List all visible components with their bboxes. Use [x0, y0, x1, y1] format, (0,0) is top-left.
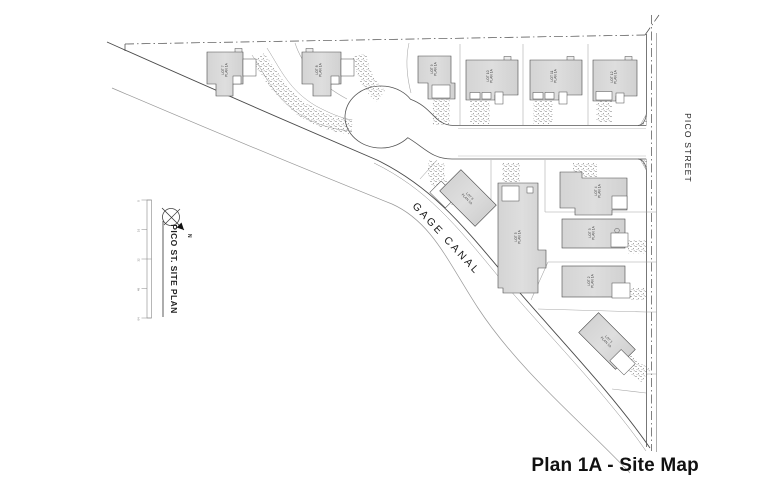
house-lot-7: LOT 7 PLAN 1A — [207, 49, 256, 97]
pico-street-label: PICO STREET — [683, 113, 693, 183]
lot8-9-line — [407, 43, 411, 93]
porch — [331, 76, 339, 84]
corner-ramp-north — [640, 114, 647, 126]
sheet-label-block: PICO ST. SITE PLAN — [163, 221, 179, 317]
lot2-1-line — [538, 309, 646, 312]
tract-boundary — [125, 15, 659, 51]
garage — [243, 59, 256, 76]
porch — [495, 92, 503, 104]
northeast-jog-line — [645, 15, 659, 35]
gage-canal: GAGE CANAL — [107, 42, 650, 473]
porch — [616, 93, 624, 103]
house-lot-8: LOT 8 PLAN 1A — [302, 49, 354, 97]
scale-tick-label: 16 — [137, 229, 141, 233]
scale-tick-label: 64 — [137, 317, 141, 321]
north-boundary-line — [125, 35, 645, 44]
garage — [596, 92, 612, 101]
garage — [470, 93, 480, 100]
driveway-lot8 — [359, 55, 381, 96]
corner-ramp-south — [640, 159, 647, 171]
sheet-title: Plan 1A - Site Map — [531, 455, 699, 476]
sheet-label: PICO ST. SITE PLAN — [169, 224, 179, 313]
garage — [612, 196, 627, 209]
lot-plan-label: PLAN 1A — [554, 68, 558, 83]
house-lot-12: LOT 12 PLAN 1A — [593, 57, 637, 104]
garage — [611, 233, 628, 247]
canal-south-edge — [112, 88, 630, 473]
scale-tick-label: 48 — [137, 288, 141, 292]
site-plan-sheet: GAGE CANAL PICO STREET — [0, 0, 770, 500]
house-lot-4: LOT 4 PLAN 1A — [560, 172, 627, 215]
garage — [502, 186, 519, 201]
house-lot-9: LOT 9 PLAN 1A — [418, 56, 455, 99]
house-lot-10: LOT 10 PLAN 1A — [466, 57, 518, 105]
porch — [527, 187, 533, 193]
site-plan-drawing: GAGE CANAL PICO STREET — [0, 0, 770, 500]
garage — [432, 85, 450, 98]
garage — [545, 93, 554, 100]
porch — [233, 76, 241, 84]
house-lot-11: LOT 11 PLAN 1A — [530, 57, 582, 105]
north-letter: N — [186, 234, 192, 238]
garage — [341, 59, 354, 76]
lot1-south-line — [612, 389, 646, 393]
house-lot-2: LOT 2 PLAN 1A — [562, 266, 630, 298]
lot-plan-label: PLAN 1A — [592, 225, 596, 240]
lot-plan-label: PLAN 1A — [591, 273, 595, 288]
lot-plan-label: PLAN 1A — [614, 69, 618, 84]
lot-plan-label: PLAN 1A — [225, 62, 229, 77]
pico-street: PICO STREET — [647, 15, 694, 452]
garage — [533, 93, 543, 100]
lot-plan-label: PLAN 1A — [518, 229, 522, 244]
lot-plan-label: PLAN 1A — [319, 62, 323, 77]
lot-plan-label: PLAN 1A — [490, 68, 494, 83]
scale-tick-label: 32 — [137, 258, 141, 262]
lot-plan-label: PLAN 1A — [598, 183, 602, 198]
house-lot-3: LOT 3 PLAN 1A — [562, 219, 628, 248]
porch — [559, 92, 567, 104]
scale-tick-label: 0 — [137, 200, 141, 202]
scale-bar-ticks — [142, 200, 152, 318]
lot-plan-label: PLAN 1A — [434, 61, 438, 76]
street-gutter-lines — [458, 129, 646, 157]
house-lot-5: LOT 5 PLAN 1A — [498, 183, 546, 293]
garage — [482, 93, 491, 100]
garage — [612, 283, 630, 298]
scale-bar: 0 16 32 48 64 — [137, 200, 152, 321]
